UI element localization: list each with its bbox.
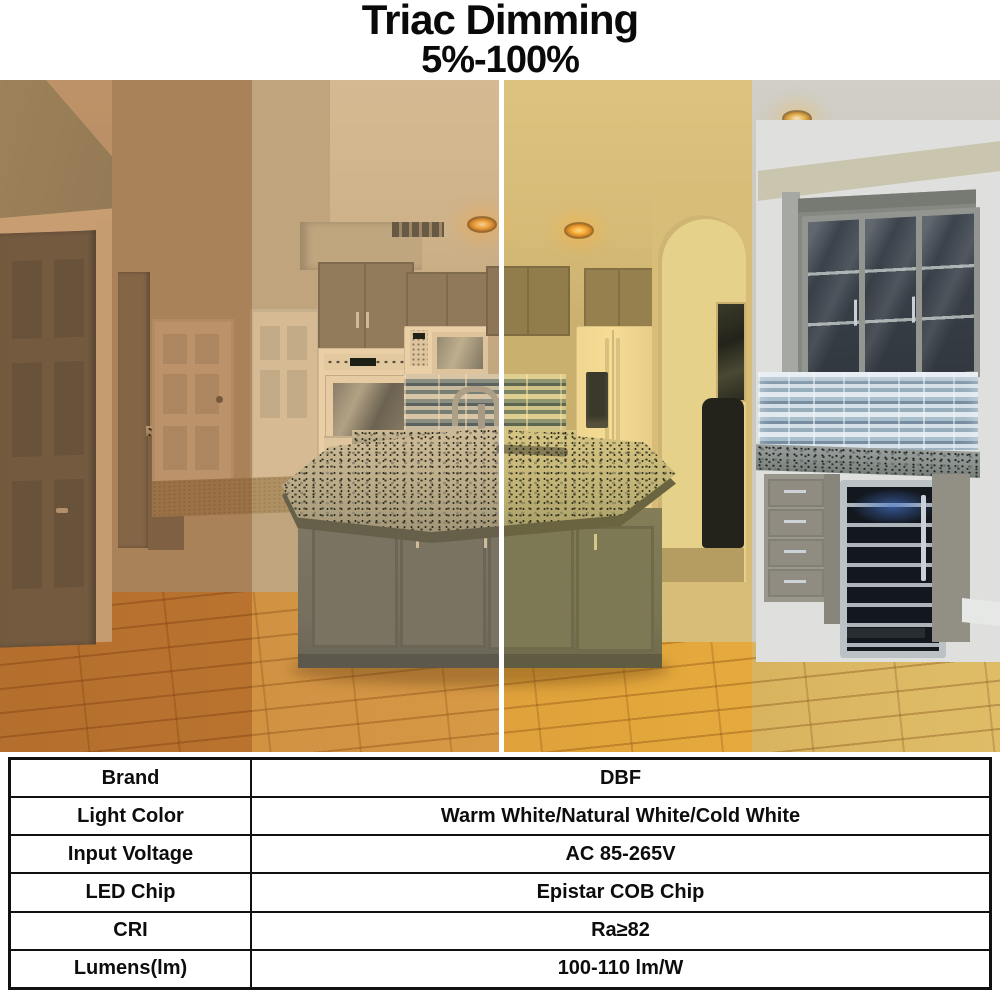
band-natural-white <box>502 80 752 752</box>
page-subtitle: 5%-100% <box>0 40 1000 80</box>
spec-label: LED Chip <box>10 873 252 911</box>
table-row: Lumens(lm) 100-110 lm/W <box>10 950 991 989</box>
band-warm-white <box>252 80 502 752</box>
spec-value: Ra≥82 <box>251 912 991 950</box>
spec-table: Brand DBF Light Color Warm White/Natural… <box>8 757 992 990</box>
table-row: CRI Ra≥82 <box>10 912 991 950</box>
spec-value: 100-110 lm/W <box>251 950 991 989</box>
kitchen-photo <box>0 80 1000 752</box>
divider-line <box>499 80 504 752</box>
table-row: Light Color Warm White/Natural White/Col… <box>10 797 991 835</box>
spec-value: DBF <box>251 759 991 798</box>
table-row: LED Chip Epistar COB Chip <box>10 873 991 911</box>
spec-value: AC 85-265V <box>251 835 991 873</box>
band-warm-white-dim <box>0 80 252 752</box>
header: Triac Dimming 5%-100% <box>0 0 1000 80</box>
page-title: Triac Dimming <box>0 0 1000 42</box>
spec-value: Warm White/Natural White/Cold White <box>251 797 991 835</box>
spec-label: CRI <box>10 912 252 950</box>
spec-value: Epistar COB Chip <box>251 873 991 911</box>
spec-label: Light Color <box>10 797 252 835</box>
table-row: Brand DBF <box>10 759 991 798</box>
spec-label: Brand <box>10 759 252 798</box>
table-row: Input Voltage AC 85-265V <box>10 835 991 873</box>
band-cold-white <box>752 80 1000 752</box>
spec-label: Lumens(lm) <box>10 950 252 989</box>
spec-label: Input Voltage <box>10 835 252 873</box>
